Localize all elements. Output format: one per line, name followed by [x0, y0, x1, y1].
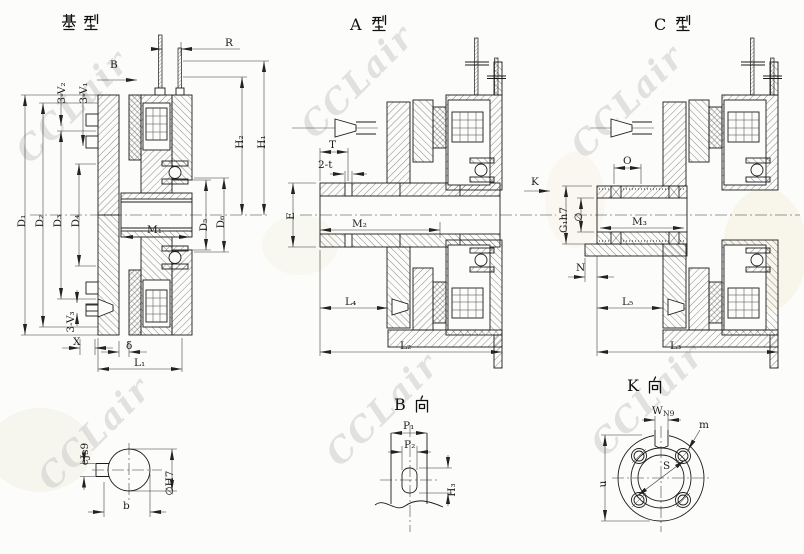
title-a-type: A [349, 15, 386, 34]
label-g1h7: G₁h7 [558, 207, 570, 233]
label-t: T [329, 139, 336, 151]
label-2t: 2-t [318, 159, 333, 171]
coupling-drawing: CCLair CCLair CCLair CCLair CCLair CCLai… [0, 0, 804, 554]
label-3v1: 3-V₁ [78, 82, 90, 103]
label-k-direction: K [531, 176, 539, 188]
title-b-letter: B [394, 395, 406, 414]
label-d2: D₂ [34, 215, 46, 228]
label-s: S [663, 460, 670, 472]
label-l4: L₄ [345, 296, 356, 308]
label-dia-h7: ∅H7 [164, 471, 176, 496]
label-m2: M₂ [352, 218, 367, 230]
title-c-type: C [654, 15, 690, 34]
label-l5: L₅ [622, 296, 633, 308]
label-d4: D₄ [70, 215, 82, 228]
label-h3: H₃ [446, 483, 458, 496]
label-b-direction: B [110, 59, 118, 71]
label-d5: D₅ [198, 219, 210, 232]
label-u: u [597, 480, 609, 487]
view-base-type: D₁ D₂ D₃ D₄ D₅ D₆ H₂ H₁ R B [16, 15, 269, 373]
break-line [375, 501, 443, 508]
label-l1: L₁ [134, 357, 145, 369]
title-base-type [63, 15, 98, 30]
label-n9: N9 [663, 409, 675, 418]
drawing-sheet: CCLair CCLair CCLair CCLair CCLair CCLai… [0, 0, 804, 554]
label-delta: δ [126, 340, 132, 352]
label-d6: D₆ [215, 216, 227, 229]
label-r: R [225, 37, 234, 49]
label-n: N [576, 262, 585, 274]
label-m1: M₁ [147, 224, 162, 236]
label-m: m [699, 419, 709, 431]
view-a-type: A [285, 15, 556, 368]
label-x: X [73, 336, 81, 348]
label-l2: L₂ [400, 340, 411, 352]
label-e: E [285, 212, 297, 220]
label-l3: L₃ [670, 340, 681, 352]
label-m3: M₃ [632, 216, 647, 228]
title-a-letter: A [349, 15, 362, 34]
label-p1: P₁ [403, 420, 414, 432]
label-phi: ∅ [573, 212, 585, 221]
label-3v2: 3-V₂ [56, 82, 68, 103]
base-section-upper-half [86, 95, 192, 215]
label-ejs9: eJs9 [79, 443, 91, 466]
watermark-text: CCLair [583, 335, 712, 464]
label-b-width: b [123, 500, 130, 512]
label-w: W [652, 405, 663, 417]
label-3v3: 3-V₃ [65, 311, 77, 332]
label-d3: D₃ [52, 215, 64, 228]
title-k-letter: K [627, 376, 640, 395]
base-terminal-pins [155, 35, 184, 95]
title-c-letter: C [654, 15, 666, 34]
label-h2: H₂ [234, 135, 246, 148]
label-d1: D₁ [16, 215, 28, 228]
label-h1: H₁ [256, 135, 268, 148]
label-p2: P₂ [404, 439, 415, 451]
label-o: O [623, 155, 632, 167]
c-mount-flange [585, 244, 687, 256]
